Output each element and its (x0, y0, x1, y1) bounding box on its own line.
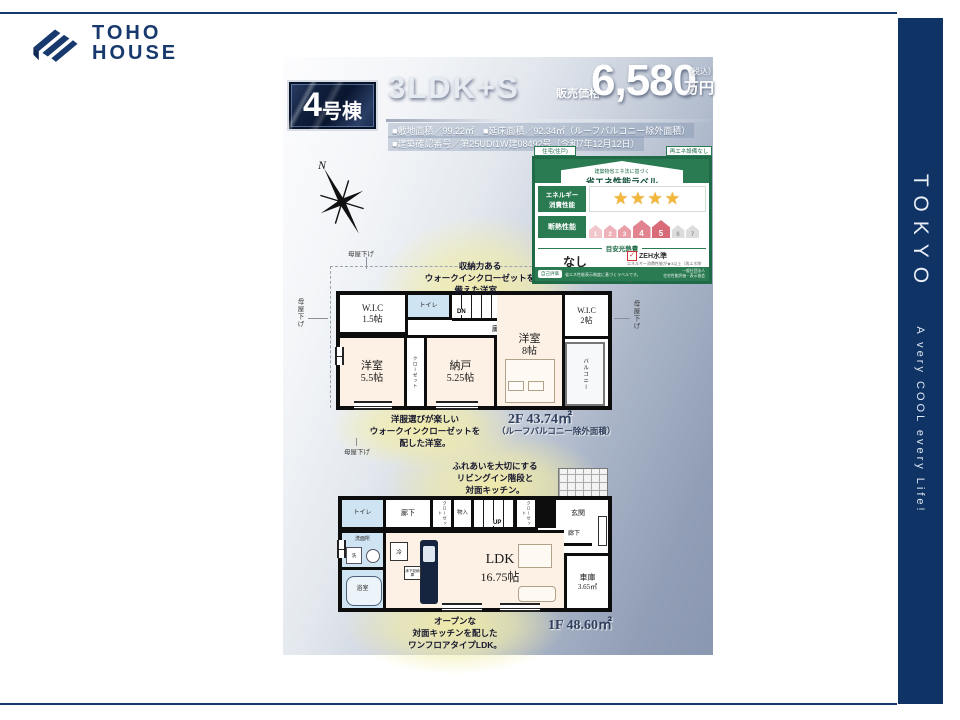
cost-header-row: 目安光熱費 (538, 243, 706, 253)
room-2f-wic2-name: W.I.C (577, 306, 596, 315)
window-2f-1 (354, 401, 392, 410)
annotation-2f-bottom: 洋服選びが楽しい ウォークインクローゼットを 配した洋室。 (340, 414, 510, 450)
room-2f-wic: W.I.C 1.5帖 (340, 295, 408, 335)
insulation-level-6: 6 (672, 225, 685, 238)
annotation-1f-bottom-line2: 対面キッチンを配した (370, 628, 540, 640)
energy-consumption-label-line1: エネルギー (546, 189, 579, 199)
energy-stars: ★★★★ (589, 186, 706, 212)
window-1f-2 (500, 603, 540, 612)
price-unit: 万円 (684, 77, 714, 98)
annotation-1f-top: ふれあいを大切にする リビングイン階段と 対面キッチン。 (410, 461, 580, 497)
ldk-label: LDK 16.75帖 (462, 552, 538, 585)
washbasin-icon (366, 549, 380, 563)
room-2f-nando-size: 5.25帖 (447, 373, 475, 385)
insulation-level-7: 7 (686, 225, 699, 238)
moyasage-lead-right (614, 318, 630, 319)
room-2f-nando-name: 納戸 (450, 360, 472, 373)
unit-suffix: 号棟 (322, 95, 362, 124)
energy-label-header: 建築物省エネ法に基づく 省エネ性能ラベル (535, 159, 709, 183)
energy-label-frame: 建築物省エネ法に基づく 省エネ性能ラベル エネルギー 消費性能 ★★★★ 断熱性… (532, 156, 712, 284)
moyasage-label-right: 母屋下げ (630, 300, 640, 330)
floor1-plan: トイレ 廊下 クローゼット 物入 UP クローゼット 玄関 廊下 洗面所 洗 (338, 496, 612, 612)
price-value: 6,580 (591, 56, 696, 106)
energy-footer-right-2: 住宅性能評価・表示協会 (639, 274, 705, 279)
toho-roof-icon (28, 20, 82, 66)
annotation-2f-bottom-line2: ウォークインクローゼットを (340, 426, 510, 438)
room-1f-bath: 浴室 (342, 567, 386, 608)
room-2f-wic-size: 1.5帖 (362, 314, 382, 324)
kitchen-sink (423, 546, 435, 562)
compass-icon: N (310, 156, 374, 236)
brand-line2: HOUSE (92, 43, 178, 63)
room-2f-balcony-label: バルコニー (582, 358, 588, 391)
hall-1f-entry-label: 廊下 (568, 531, 580, 538)
side-banner-title: TOKYO (908, 174, 932, 292)
hall-1f: 廊下 (386, 500, 430, 530)
room-2f-bedroom55-size: 5.5帖 (361, 373, 384, 385)
annotation-1f-bottom-line3: ワンフロアタイプLDK。 (370, 640, 540, 652)
energy-footer-right: 一般社団法人 住宅性能評価・表示協会 (639, 269, 705, 280)
energy-tab-dwelling: 住宅(住戸) (534, 146, 576, 156)
room-2f-bedroom8-size: 8帖 (522, 346, 537, 358)
energy-label-subtitle: 建築物省エネ法に基づく (561, 168, 683, 175)
setback-guide-left (330, 266, 331, 408)
side-banner-tagline: A very COOL every Life! (914, 326, 926, 513)
bed-pillow-1 (508, 381, 524, 391)
room-2f-bedroom8-name: 洋室 (519, 333, 541, 346)
unit-badge: 4 号棟 (287, 80, 378, 131)
brand-name: TOHO HOUSE (92, 23, 178, 63)
annotation-1f-bottom-line1: オープンな (370, 616, 540, 628)
brand-line1: TOHO (92, 23, 178, 43)
floor2-area-note: （ルーフバルコニー除外面積） (497, 425, 615, 437)
cost-header-line-right (642, 248, 706, 249)
bed-pillow-2 (528, 381, 544, 391)
room-1f-closet-a-label: クローゼット (437, 500, 446, 527)
floor-storage-label: 床下収納庫 (405, 569, 420, 577)
shoe-cabinet (598, 516, 607, 546)
moyasage-label-top: 母屋下げ (348, 248, 374, 258)
energy-tab-renewable: 再エネ設備なし (666, 146, 712, 156)
ldk-size: 16.75帖 (462, 568, 538, 585)
zeh-row: ✓ ZEH水準 (627, 251, 667, 261)
room-2f-wic2: W.I.C 2帖 (565, 295, 608, 339)
header-divider (386, 119, 710, 122)
wall-block-1f (538, 500, 556, 528)
room-1f-genkan-label: 玄関 (571, 509, 585, 517)
bottom-rule (0, 703, 897, 705)
hall-1f-label: 廊下 (401, 509, 415, 517)
room-2f-balcony: バルコニー (565, 342, 605, 406)
room-1f-toilet-label: トイレ (353, 510, 371, 517)
annotation-1f-top-line2: リビングイン階段と (410, 473, 580, 485)
garage-name: 車庫 (580, 573, 596, 582)
zeh-label: ZEH水準 (639, 251, 667, 261)
insulation-level-4: 4 (633, 220, 651, 238)
washer-box: 洗 (346, 547, 362, 564)
energy-footer-left: 省エネ性能表示制度に基づくラベルです。 (565, 272, 641, 278)
insulation-scale: 1 2 3 4 5 6 7 (589, 216, 706, 238)
room-1f-senmen: 洗面所 洗 (342, 530, 386, 567)
insulation-level-5: 5 (652, 220, 670, 238)
energy-consumption-label-line2: 消費性能 (549, 199, 575, 209)
window-2f-2 (436, 401, 478, 410)
energy-label: 住宅(住戸) 再エネ設備なし 建築物省エネ法に基づく 省エネ性能ラベル エネルギ… (532, 146, 712, 284)
fridge-space: 冷 (390, 542, 408, 561)
window-1f-1 (442, 603, 482, 612)
floor1-area: 1F 48.60㎡ (548, 614, 612, 634)
plan-type: 3LDK+S (388, 70, 520, 106)
annotation-1f-bottom: オープンな 対面キッチンを配した ワンフロアタイプLDK。 (370, 616, 540, 652)
room-2f-wic2-size: 2帖 (581, 316, 593, 325)
annotation-1f-top-line3: 対面キッチン。 (410, 485, 580, 497)
top-rule (0, 12, 897, 14)
zeh-checkbox-icon: ✓ (627, 251, 637, 261)
room-2f-bedroom55: 洋室 5.5帖 (340, 335, 407, 406)
stairs-1f-up-label: UP (492, 520, 502, 526)
insulation-level-1: 1 (589, 225, 602, 238)
room-1f-genkan: 玄関 (556, 500, 600, 526)
energy-consumption-label: エネルギー 消費性能 (538, 186, 586, 212)
ldk-name: LDK (462, 552, 538, 568)
floor-storage: 床下収納庫 (404, 566, 421, 580)
unit-number: 4 (303, 86, 322, 125)
annotation-1f-top-line1: ふれあいを大切にする (410, 461, 580, 473)
energy-label-title-house: 建築物省エネ法に基づく 省エネ性能ラベル (561, 161, 683, 183)
room-2f-toilet: トイレ (408, 295, 452, 320)
room-2f-wic-name: W.I.C (362, 303, 383, 313)
room-1f-closet-a: クローゼット (430, 500, 454, 530)
compass-north-letter: N (317, 158, 327, 172)
fridge-label: 冷 (396, 548, 402, 556)
sofa (518, 586, 556, 602)
room-1f-bath-label: 浴室 (356, 586, 368, 593)
room-1f-toilet: トイレ (342, 500, 386, 530)
annotation-2f-top-line3: 備えた洋室。 (395, 285, 565, 297)
room-2f-toilet-label: トイレ (419, 303, 437, 310)
moyasage-label-left: 母屋下げ (294, 298, 304, 328)
moyasage-label-bottom: 母屋下げ (344, 446, 370, 456)
moyasage-lead-left (308, 318, 328, 319)
floor2-plan: W.I.C 1.5帖 トイレ DN 廊下 洋室 5.5帖 クローゼット 納戸 5… (336, 291, 612, 410)
flyer-page: TOHO HOUSE TOKYO A very COOL every Life!… (0, 0, 960, 720)
insulation-level-2: 2 (604, 225, 617, 238)
stairs-2f-dn-label: DN (456, 309, 467, 315)
brand-logo: TOHO HOUSE (28, 20, 178, 66)
energy-footer-bar: 自己評価 省エネ性能表示制度に基づくラベルです。 一般社団法人 住宅性能評価・表… (535, 267, 709, 281)
insulation-level-3: 3 (618, 225, 631, 238)
window-1f-3 (337, 540, 346, 558)
room-1f-closet-b: クローゼット (514, 500, 538, 530)
insulation-label: 断熱性能 (538, 216, 586, 238)
room-1f-mono-label: 物入 (457, 510, 468, 516)
room-1f-closet-b-label: クローゼット (521, 500, 530, 527)
garage-size: 3.65㎡ (578, 583, 597, 591)
energy-footer-badge: 自己評価 (538, 270, 562, 278)
price-tax-note: （税込） (684, 66, 716, 77)
room-2f-nando: 納戸 5.25帖 (427, 335, 497, 406)
cost-header-line-left (538, 248, 602, 249)
room-2f-bedroom55-name: 洋室 (361, 360, 383, 373)
room-1f-mono: 物入 (454, 500, 474, 530)
room-2f-closet: クローゼット (407, 335, 427, 406)
room-2f-closet-label: クローゼット (413, 356, 418, 389)
room-1f-senmen-label: 洗面所 (355, 537, 370, 543)
room-1f-garage: 車庫 3.65㎡ (564, 553, 608, 608)
window-2f-3 (335, 347, 344, 365)
annotation-2f-bottom-line1: 洋服選びが楽しい (340, 414, 510, 426)
moyasage-lead-top (366, 257, 367, 269)
